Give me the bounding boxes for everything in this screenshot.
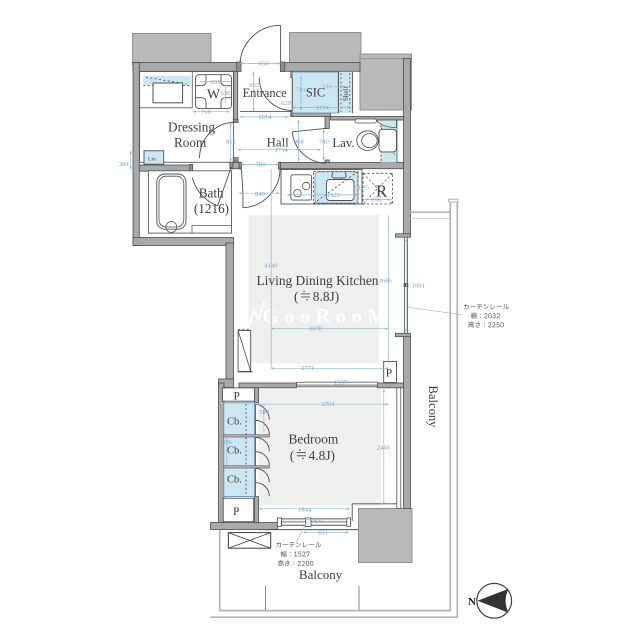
svg-text:2466: 2466: [377, 445, 391, 452]
svg-text:Bath: Bath: [199, 186, 224, 201]
svg-text:780: 780: [256, 161, 267, 168]
svg-text:P: P: [234, 391, 240, 403]
svg-text:1881: 1881: [412, 282, 425, 289]
svg-text:P: P: [233, 506, 239, 518]
svg-text:629: 629: [281, 100, 292, 107]
svg-text:Lin.: Lin.: [148, 157, 158, 163]
svg-text:SIC: SIC: [306, 86, 325, 100]
svg-text:868: 868: [294, 138, 305, 145]
svg-text:769: 769: [201, 109, 212, 116]
svg-text:Entrance: Entrance: [243, 86, 288, 100]
svg-text:596: 596: [222, 439, 233, 446]
svg-text:Balcony: Balcony: [426, 386, 440, 429]
svg-text:781: 781: [296, 86, 306, 93]
svg-text:4140: 4140: [264, 262, 278, 269]
svg-text:W: W: [207, 87, 221, 102]
svg-text:655: 655: [359, 185, 370, 192]
svg-text:850: 850: [259, 61, 270, 68]
svg-text:Cb.: Cb.: [227, 475, 242, 486]
svg-text:700: 700: [319, 138, 330, 145]
svg-text:Room: Room: [174, 135, 207, 150]
svg-text:4.8J): 4.8J): [309, 448, 335, 463]
svg-text:(: (: [294, 289, 299, 304]
svg-text:3686: 3686: [379, 278, 393, 285]
svg-text:3070: 3070: [309, 326, 323, 333]
svg-text:1844: 1844: [298, 506, 312, 513]
svg-text:Living Dining Kitchen: Living Dining Kitchen: [257, 273, 379, 288]
svg-text:1431: 1431: [310, 517, 323, 524]
svg-text:584: 584: [259, 409, 270, 416]
svg-text:Cb.: Cb.: [227, 446, 242, 457]
svg-text:P: P: [386, 368, 392, 380]
svg-text:Shelf: Shelf: [342, 85, 350, 101]
svg-text:696: 696: [371, 197, 382, 204]
svg-text:8.8J): 8.8J): [313, 289, 339, 304]
svg-text:849: 849: [255, 191, 266, 198]
svg-text:Dressing: Dressing: [168, 120, 215, 135]
svg-text:2701: 2701: [322, 401, 335, 408]
svg-text:(1216): (1216): [194, 201, 229, 216]
svg-text:(: (: [290, 448, 295, 463]
svg-text:Balcony: Balcony: [299, 567, 343, 582]
svg-text:1014: 1014: [258, 114, 272, 121]
svg-text:N: N: [468, 596, 476, 608]
svg-text:Hall: Hall: [267, 136, 289, 150]
svg-text:1525: 1525: [327, 192, 341, 199]
svg-text:Bedroom: Bedroom: [288, 432, 338, 447]
svg-text:630: 630: [221, 90, 232, 97]
svg-text:831: 831: [318, 529, 328, 536]
svg-text:630: 630: [211, 79, 222, 86]
svg-text:2771: 2771: [301, 365, 314, 372]
svg-text:1537: 1537: [334, 379, 348, 386]
svg-text:812: 812: [226, 139, 236, 146]
svg-text:Cb.: Cb.: [227, 417, 242, 428]
svg-text:384: 384: [119, 161, 130, 168]
svg-text:1194: 1194: [316, 105, 330, 112]
svg-text:Lav.: Lav.: [332, 136, 354, 150]
svg-text:GooRooM: GooRooM: [263, 304, 393, 328]
svg-text:268: 268: [167, 165, 178, 172]
